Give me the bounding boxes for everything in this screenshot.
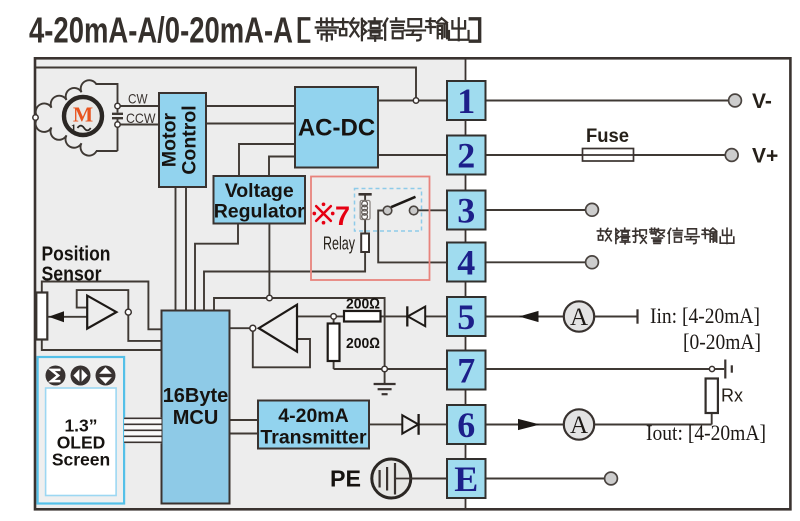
svg-text:Fuse: Fuse (586, 126, 629, 147)
svg-text:Regulator: Regulator (214, 201, 305, 223)
svg-text:MCU: MCU (173, 407, 219, 429)
svg-text:4-20mA: 4-20mA (278, 405, 348, 427)
svg-text:Screen: Screen (52, 450, 110, 470)
svg-text:4-20mA-A/0-20mA-A: 4-20mA-A/0-20mA-A (29, 10, 293, 51)
svg-text:E: E (454, 459, 478, 499)
svg-text:Position: Position (42, 244, 111, 266)
svg-text:5: 5 (457, 297, 475, 337)
svg-text:6: 6 (457, 405, 475, 445)
svg-text:Relay: Relay (323, 234, 355, 254)
svg-text:200Ω: 200Ω (346, 335, 380, 352)
svg-text:CCW: CCW (126, 110, 156, 126)
svg-text:A: A (570, 304, 588, 331)
svg-text:7: 7 (335, 201, 350, 231)
svg-text:Control: Control (179, 105, 201, 174)
svg-text:Rx: Rx (721, 386, 743, 406)
svg-text:[0-20mA]: [0-20mA] (683, 329, 761, 354)
svg-text:Motor: Motor (159, 113, 181, 168)
svg-text:CW: CW (128, 91, 148, 107)
svg-text:2: 2 (457, 136, 475, 176)
svg-text:A: A (570, 412, 588, 439)
svg-text:Transmitter: Transmitter (260, 427, 367, 449)
svg-text:Iin: [4-20mA]: Iin: [4-20mA] (650, 303, 760, 328)
svg-text:AC-DC: AC-DC (298, 115, 375, 142)
svg-text:V-: V- (752, 90, 772, 113)
svg-text:Voltage: Voltage (225, 180, 294, 202)
svg-text:4: 4 (457, 243, 475, 283)
svg-text:1: 1 (457, 81, 475, 121)
svg-text:200Ω: 200Ω (346, 296, 380, 313)
svg-text:3: 3 (457, 191, 475, 231)
svg-text:Sensor: Sensor (42, 264, 102, 286)
svg-text:1: 1 (71, 124, 76, 135)
svg-text:V+: V+ (752, 145, 778, 168)
svg-text:PE: PE (330, 466, 361, 492)
svg-text:7: 7 (457, 351, 475, 391)
svg-text:Iout: [4-20mA]: Iout: [4-20mA] (646, 420, 766, 445)
svg-text:16Byte: 16Byte (163, 385, 229, 407)
